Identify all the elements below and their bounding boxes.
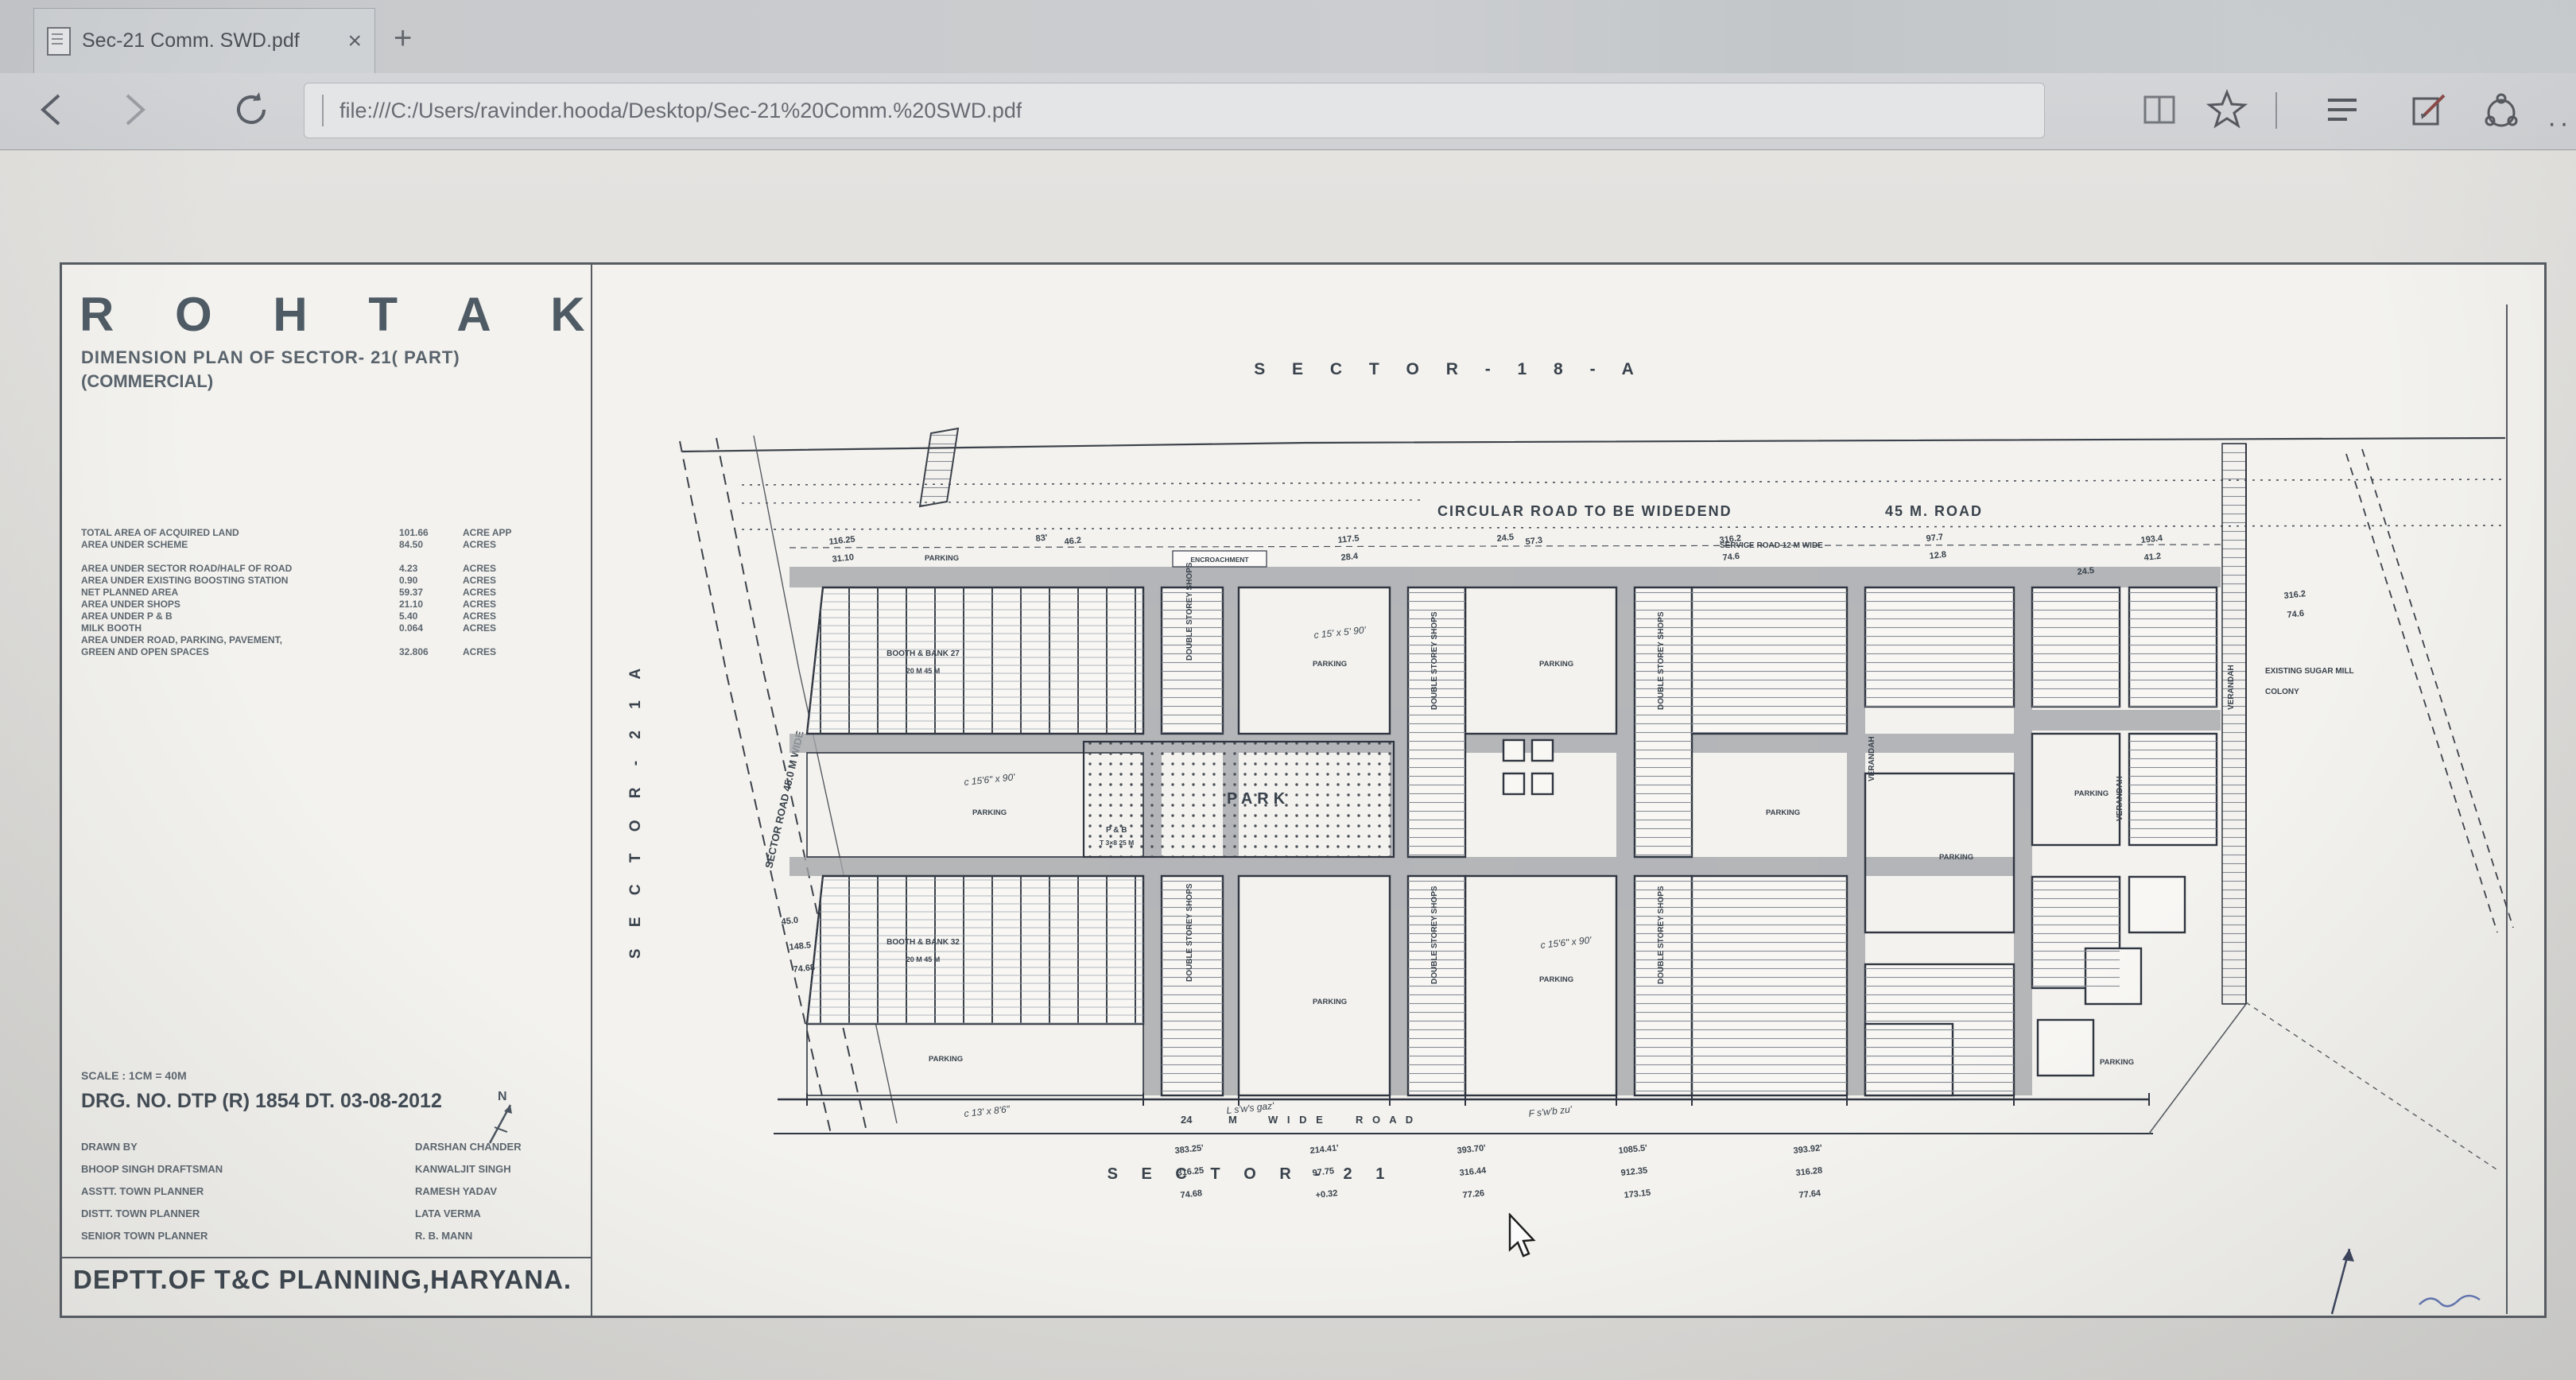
sector-21a-label: S E C T O R - 2 1 A [627,660,644,959]
handwritten-annotation: 1085.5' [1618,1143,1648,1156]
handwritten-annotation: 173.15 [1624,1188,1651,1200]
parking-label: PARKING [1539,660,1573,669]
signatory-row: ASSTT. TOWN PLANNERRAMESH YADAV [81,1185,574,1207]
handwritten-annotation: 393.70' [1457,1143,1487,1156]
tab-title: Sec-21 Comm. SWD.pdf [82,29,336,52]
schedule-row: AREA UNDER P & B5.40ACRES [81,611,574,622]
handwritten-annotation: 28.4 [1340,552,1359,563]
pdf-favicon-icon [47,27,71,56]
booth-bank-1-label: BOOTH & BANK 27 [886,649,960,658]
booth-bank-2-label: BOOTH & BANK 32 [886,938,960,947]
handwritten-annotation: 97.7 [1926,533,1944,544]
schedule-row: AREA UNDER SECTOR ROAD/HALF OF ROAD4.23A… [81,563,574,575]
handwritten-annotation: 193.4 [2140,533,2164,545]
handwritten-annotation: 214.41' [1309,1143,1340,1156]
north-letter: N [498,1090,507,1103]
park-label: PARK [1227,790,1290,808]
schedule-row: AREA UNDER SHOPS21.10ACRES [81,599,574,611]
address-url[interactable]: file:///C:/Users/ravinder.hooda/Desktop/… [339,99,1022,123]
colony-road-2 [2362,449,2513,928]
verandah-vertical-label: VERANDAH [2116,776,2124,821]
stamp-signature-squiggle [2419,1296,2480,1306]
handwritten-annotation: F s'w'b zu' [1528,1103,1573,1119]
pnb-size-label: T 3×8 25 M [1100,839,1134,847]
web-note-icon[interactable] [2409,89,2450,130]
parking-label: PARKING [1766,808,1800,817]
site-plan-drawing: S E C T O R - 1 8 - A CIRCULAR ROAD TO B… [591,265,2549,1316]
back-button[interactable] [30,87,75,132]
handwritten-annotation: 383.25' [1174,1143,1205,1156]
handwritten-annotation: 74.6 [2287,609,2305,620]
favorites-star-icon[interactable] [2206,89,2248,130]
toolbar-divider [2275,92,2277,129]
handwritten-annotation: 316.28 [1795,1166,1823,1178]
handwritten-annotation: 57.3 [1525,536,1543,547]
reading-view-icon[interactable] [2139,89,2180,130]
pnb-label: P & B [1106,826,1127,835]
parking-label: PARKING [1313,998,1347,1006]
signatory-block: DRAWN BYDARSHAN CHANDERBHOOP SINGH DRAFT… [81,1141,574,1252]
handwritten-annotation: 912.35 [1620,1166,1648,1178]
signatory-row: SENIOR TOWN PLANNERR. B. MANN [81,1230,574,1252]
shops-vertical-label: DOUBLE STOREY SHOPS [1185,883,1194,982]
parking-label: PARKING [2100,1058,2134,1067]
handwritten-annotation: c 15'6" x 90' [1540,934,1593,951]
sector-21-label: S E C T O R - 2 1 [1108,1165,1395,1183]
schedule-row: AREA UNDER SCHEME84.50ACRES [81,539,574,551]
wide-road-24: 24 [1181,1114,1193,1126]
parking-label: PARKING [1539,975,1573,984]
browser-tab[interactable]: Sec-21 Comm. SWD.pdf × [33,8,375,73]
parking-label: PARKING [929,1055,963,1064]
handwritten-annotation: 41.2 [2143,552,2162,563]
pen-arrow [2332,1249,2354,1314]
area-schedule: TOTAL AREA OF ACQUIRED LAND101.66ACRE AP… [81,527,574,658]
signatory-row: DISTT. TOWN PLANNERLATA VERMA [81,1207,574,1230]
hub-icon[interactable] [2322,89,2363,130]
schedule-row: GREEN AND OPEN SPACES32.806ACRES [81,646,574,658]
handwritten-annotation: 77.64 [1798,1188,1822,1200]
wide-road-wide: W I D E [1268,1114,1326,1126]
road-45m-label: 45 M. ROAD [1885,503,1983,519]
handwritten-annotation: 74.68 [1180,1188,1203,1200]
drawing-subtitle-1: DIMENSION PLAN OF SECTOR- 21( PART) [81,347,460,368]
schedule-row [81,551,574,563]
address-divider [322,95,324,126]
shops-vertical-label: DOUBLE STOREY SHOPS [1430,611,1439,710]
handwritten-annotation: 46.2 [1064,536,1082,547]
handwritten-annotation: 24.5 [2077,566,2095,577]
address-bar[interactable]: file:///C:/Users/ravinder.hooda/Desktop/… [304,83,2045,138]
circular-road-label: CIRCULAR ROAD TO BE WIDEDEND [1437,503,1732,519]
tab-close-icon[interactable]: × [347,28,362,55]
forward-button[interactable] [111,87,156,132]
booth-bank-1-size: 20 M 45 M [906,667,941,675]
sugar-mill-label-1: EXISTING SUGAR MILL [2265,667,2354,676]
titleblock-rule [62,1257,591,1258]
handwritten-annotation: c 15' x 5' 90' [1313,624,1367,641]
schedule-row: AREA UNDER EXISTING BOOSTING STATION0.90… [81,575,574,587]
scale-note: SCALE : 1CM = 40M [81,1069,187,1082]
handwritten-annotation: 45.0 [781,916,799,927]
handwritten-annotation: 77.26 [1462,1188,1485,1200]
schedule-row: AREA UNDER ROAD, PARKING, PAVEMENT, [81,634,574,646]
sector-18a-label: S E C T O R - 1 8 - A [1254,360,1645,378]
handwritten-annotation: 24.5 [1496,533,1515,544]
schedule-row: TOTAL AREA OF ACQUIRED LAND101.66ACRE AP… [81,527,574,539]
handwritten-annotation: 316.2 [2283,589,2306,601]
handwritten-annotation: 83' [1035,533,1048,544]
pdf-viewport[interactable]: R O H T A K DIMENSION PLAN OF SECTOR- 21… [0,150,2576,1380]
handwritten-annotation: 117.5 [1337,533,1360,545]
shops-vertical-label: DOUBLE STOREY SHOPS [1657,886,1666,984]
refresh-button[interactable] [229,87,274,132]
browser-toolbar: file:///C:/Users/ravinder.hooda/Desktop/… [0,73,2576,150]
schedule-row: NET PLANNED AREA59.37ACRES [81,587,574,599]
share-icon[interactable] [2481,89,2522,130]
drg-number: DRG. NO. DTP (R) 1854 DT. 03-08-2012 [81,1090,442,1113]
shops-vertical-label: DOUBLE STOREY SHOPS [1430,886,1439,984]
drawing-sheet: R O H T A K DIMENSION PLAN OF SECTOR- 21… [60,262,2547,1318]
parking-label: PARKING [972,808,1007,817]
parking-label: PARKING [1939,853,1973,862]
colony-road-1 [2346,454,2497,932]
sector-road-line-1 [680,441,831,1134]
sugar-mill-label-2: COLONY [2265,688,2299,696]
handwritten-annotation: 393.92' [1793,1143,1823,1156]
shops-vertical-label: DOUBLE STOREY SHOPS [1185,562,1194,661]
north-arrow-icon: N [475,1087,531,1151]
wide-road-road: R O A D [1356,1114,1416,1126]
booth-bank-2-size: 20 M 45 M [906,956,941,963]
new-tab-button[interactable]: + [394,21,412,56]
verandah-vertical-label: VERANDAH [2227,665,2236,710]
mouse-cursor [1505,1213,1542,1261]
handwritten-annotation: +0.32 [1315,1188,1338,1200]
verandah-vertical-label: VERANDAH [1868,736,1876,781]
signatory-row: BHOOP SINGH DRAFTSMANKANWALJIT SINGH [81,1163,574,1185]
schedule-row: MILK BOOTH0.064ACRES [81,622,574,634]
more-icon[interactable]: ·· [2547,108,2572,139]
shops-vertical-label: DOUBLE STOREY SHOPS [1657,611,1666,710]
handwritten-annotation: 31.10 [832,552,855,564]
drawing-title: R O H T A K [80,287,609,342]
handwritten-annotation: c 13' x 8'6" [964,1103,1011,1119]
drawing-subtitle-2: (COMMERCIAL) [81,371,213,392]
parking-label: PARKING [1313,660,1347,669]
handwritten-annotation: 316.44 [1459,1165,1488,1178]
handwritten-annotation: c 15'6" x 90' [964,771,1016,788]
parking-label: PARKING [2074,789,2109,798]
tab-bar: Sec-21 Comm. SWD.pdf × + [0,0,2576,73]
encroachment-label: ENCROACHMENT [1190,556,1249,564]
handwritten-annotation: 12.8 [1929,550,1947,561]
screenshot-root: Sec-21 Comm. SWD.pdf × + file:///C:/User… [0,0,2576,1380]
parking-label: PARKING [925,554,959,563]
handwritten-annotation: 74.6 [1722,552,1740,563]
department-title: DEPTT.OF T&C PLANNING,HARYANA. [73,1265,572,1295]
handwritten-annotation: 116.25 [828,535,855,547]
handwritten-annotation: 148.5 [789,940,812,952]
